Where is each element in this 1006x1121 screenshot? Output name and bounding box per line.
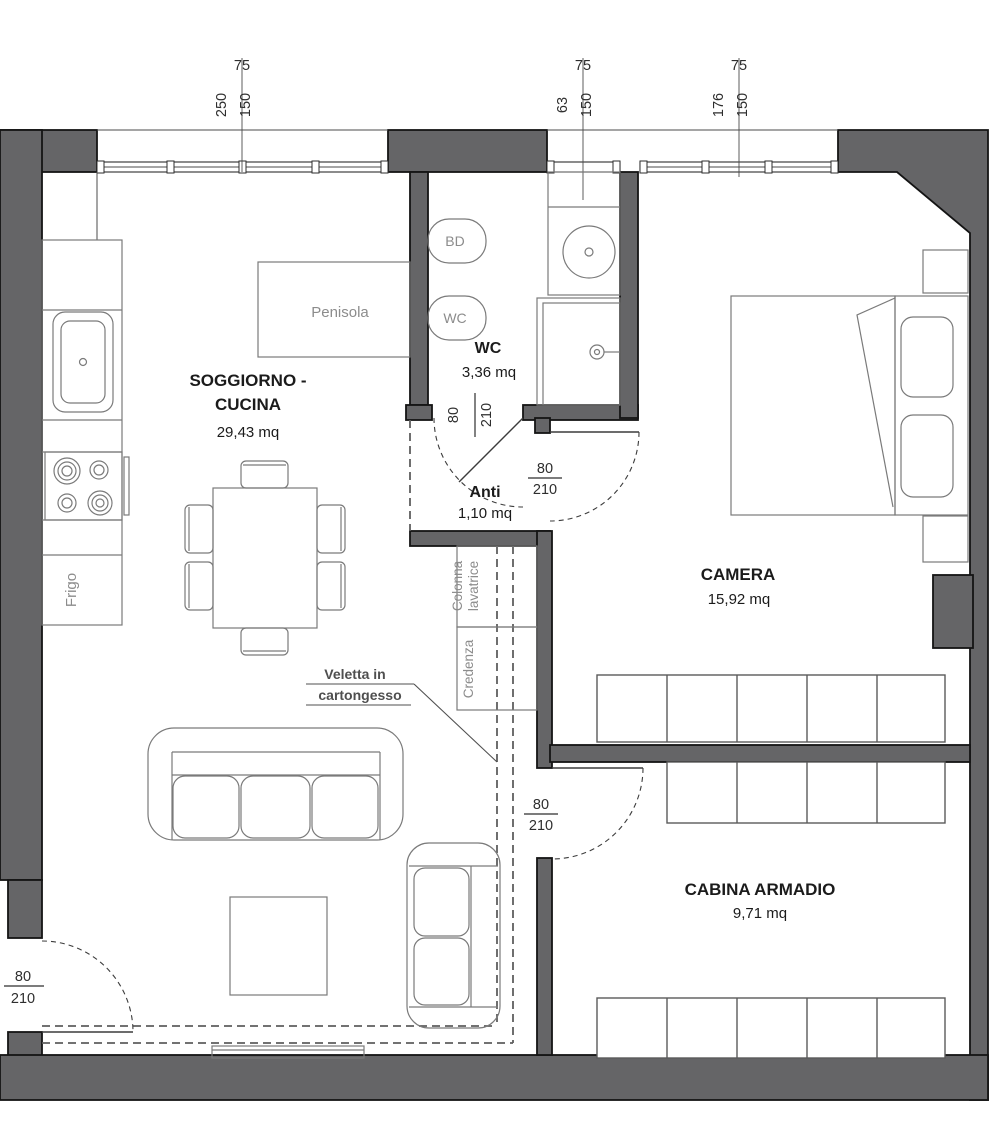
door-swing-arc xyxy=(550,432,639,521)
door-swing-arc xyxy=(552,768,643,859)
colonna-label-line2: lavatrice xyxy=(466,561,481,611)
bed xyxy=(731,296,968,515)
toilet-label: WC xyxy=(443,310,466,326)
kitchen-counter: Frigo xyxy=(42,240,129,625)
walls xyxy=(0,130,988,1100)
wall-anti-south xyxy=(410,531,550,546)
colonna-lavatrice: Colonna lavatrice xyxy=(450,546,537,627)
wall-corridor-upper xyxy=(537,531,552,768)
room-label-cabina-armadio: CABINA ARMADIO xyxy=(685,880,836,899)
top-dimensions: 75 250 150 75 63 150 75 176 150 xyxy=(214,58,751,200)
kitchen-sink xyxy=(53,312,113,412)
pillow xyxy=(901,317,953,397)
room-area-soggiorno: 29,43 mq xyxy=(217,424,280,441)
door-cabina-height: 210 xyxy=(529,818,553,834)
door-wc-height: 210 xyxy=(479,403,495,427)
nightstand xyxy=(923,516,968,562)
wall-cabina-west xyxy=(537,858,552,1055)
wall-top-mid xyxy=(388,130,547,172)
door-dimension-wc: 80 210 xyxy=(446,393,495,437)
wardrobe-camera xyxy=(597,675,945,742)
floor-plan-drawing: 75 250 150 75 63 150 75 176 150 xyxy=(0,0,1006,1121)
sofa-cushion xyxy=(241,776,310,838)
door-camera-height: 210 xyxy=(533,482,557,498)
window-wc xyxy=(547,162,620,172)
credenza-label: Credenza xyxy=(461,639,476,698)
dim-window-camera-width: 176 xyxy=(711,93,727,117)
sofa-cushion xyxy=(312,776,378,838)
room-label-soggiorno-line2: CUCINA xyxy=(215,395,281,414)
door-camera xyxy=(550,432,639,521)
room-label-wc: WC xyxy=(475,340,502,357)
sofa xyxy=(148,728,403,840)
wall-wc-door-jamb-left xyxy=(406,405,432,420)
door-swing-arc xyxy=(42,941,133,1032)
colonna-label-line1: Colonna xyxy=(450,560,465,611)
dim-window-wc-height: 75 xyxy=(575,58,591,74)
door-dimension-cabina: 80 210 xyxy=(524,797,558,834)
door-entrance xyxy=(42,941,133,1032)
door-dimension-entrance: 80 210 xyxy=(4,969,44,1007)
room-area-wc: 3,36 mq xyxy=(462,364,516,381)
veletta-label-line2: cartongesso xyxy=(318,687,401,703)
veletta-leader-line xyxy=(414,684,497,762)
dim-window-wc-sill: 150 xyxy=(579,93,595,117)
stove-handle xyxy=(124,457,129,515)
door-wc-width: 80 xyxy=(446,407,462,423)
fridge: Frigo xyxy=(63,573,80,607)
vanity-sink xyxy=(548,172,620,295)
dining-table xyxy=(185,461,345,655)
wall-left-upper xyxy=(0,130,42,880)
dim-window-wc-width: 63 xyxy=(555,97,571,113)
room-area-cabina-armadio: 9,71 mq xyxy=(733,905,787,922)
bed-blanket-fold xyxy=(857,298,895,507)
wall-niche-pilaster xyxy=(933,575,973,648)
door-entrance-height: 210 xyxy=(11,991,35,1007)
dim-window-camera-sill: 150 xyxy=(735,93,751,117)
wall-left-above-entrance xyxy=(8,880,42,938)
door-camera-width: 80 xyxy=(537,461,553,477)
table xyxy=(213,488,317,628)
wall-wc-west xyxy=(410,172,428,405)
room-area-anti: 1,10 mq xyxy=(458,505,512,522)
door-cabina-width: 80 xyxy=(533,797,549,813)
wardrobe-cabina-bottom xyxy=(597,998,945,1058)
wall-bottom xyxy=(0,1055,988,1100)
kitchen-stove xyxy=(45,452,129,520)
wardrobe-cabina-top xyxy=(667,762,945,823)
wall-camera-door-jamb xyxy=(535,418,550,433)
room-area-camera: 15,92 mq xyxy=(708,591,771,608)
bed-head-section xyxy=(895,296,968,515)
veletta-label-line1: Veletta in xyxy=(324,666,385,682)
wall-camera-cabina xyxy=(550,745,970,762)
bidet-label: BD xyxy=(445,233,464,249)
shower xyxy=(537,298,620,405)
nightstand xyxy=(923,250,968,293)
pillow xyxy=(901,415,953,497)
room-label-anti: Anti xyxy=(469,484,500,501)
door-entrance-width: 80 xyxy=(15,969,31,985)
armchair-cushion xyxy=(414,938,469,1005)
door-dimension-camera: 80 210 xyxy=(528,461,562,498)
sofa-cushion xyxy=(173,776,239,838)
dim-window-soggiorno-sill: 150 xyxy=(238,93,254,117)
room-label-soggiorno-line1: SOGGIORNO - xyxy=(189,371,306,390)
penisola: Penisola xyxy=(258,262,410,357)
door-cabina xyxy=(552,768,643,859)
armchair-cushion xyxy=(414,868,469,936)
wall-wc-east xyxy=(620,172,638,418)
coffee-table xyxy=(230,897,327,995)
dim-window-camera-height: 75 xyxy=(731,58,747,74)
floor-plan: 75 250 150 75 63 150 75 176 150 xyxy=(0,0,1006,1121)
armchair xyxy=(407,843,500,1028)
dim-window-soggiorno-height: 75 xyxy=(234,58,250,74)
wc-fixtures: BD WC xyxy=(428,172,620,405)
kitchen-counter-outline xyxy=(42,240,122,625)
fridge-label: Frigo xyxy=(63,573,80,607)
dim-window-soggiorno-width: 250 xyxy=(214,93,230,117)
penisola-label: Penisola xyxy=(311,304,369,321)
bed-mattress xyxy=(731,296,895,515)
room-label-camera: CAMERA xyxy=(701,565,776,584)
